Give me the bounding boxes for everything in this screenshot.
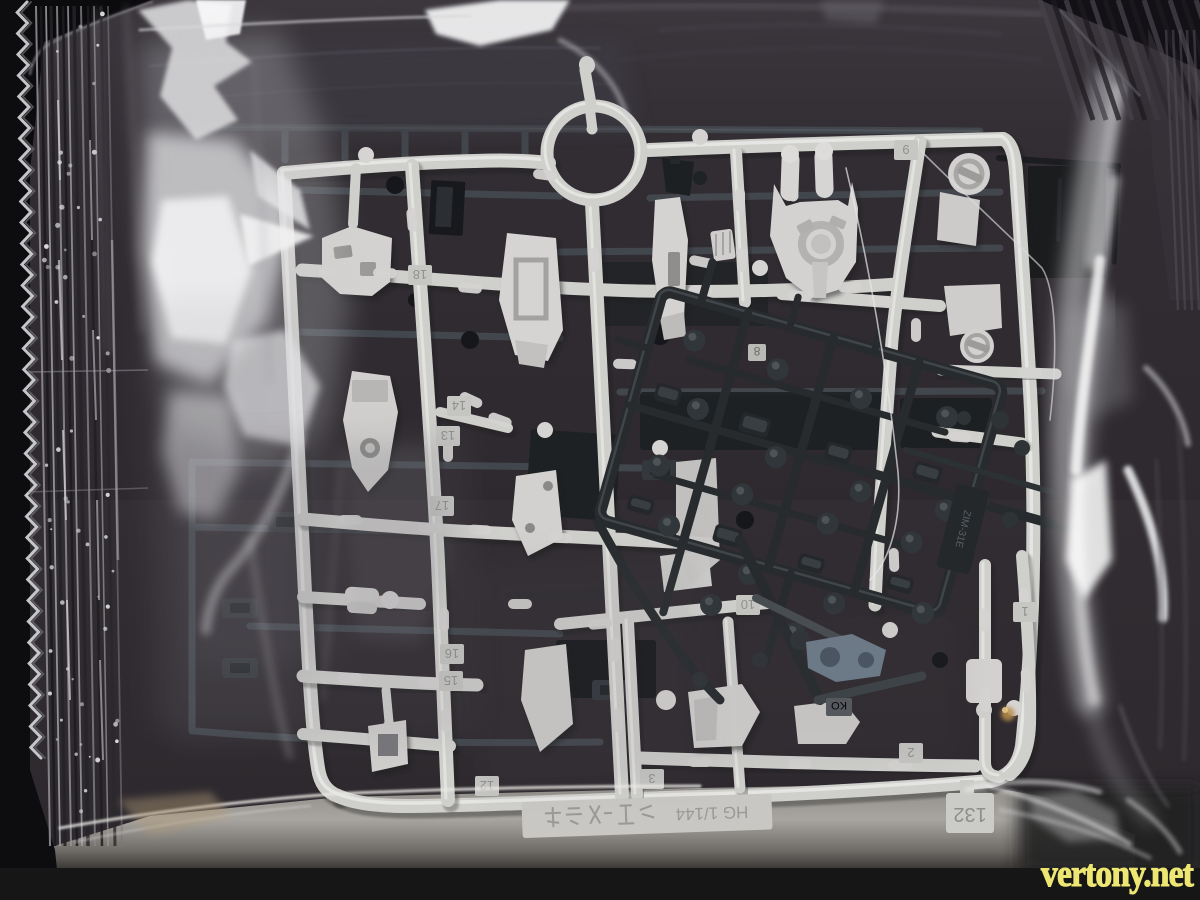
svg-text:8: 8 <box>753 344 760 358</box>
svg-text:1: 1 <box>1021 604 1028 619</box>
svg-text:9: 9 <box>902 142 909 157</box>
svg-text:132: 132 <box>953 803 986 825</box>
svg-text:HG 1/144: HG 1/144 <box>675 802 748 824</box>
svg-text:14: 14 <box>452 398 466 413</box>
svg-text:vertony.net: vertony.net <box>1041 853 1194 895</box>
svg-text:18: 18 <box>413 267 427 282</box>
